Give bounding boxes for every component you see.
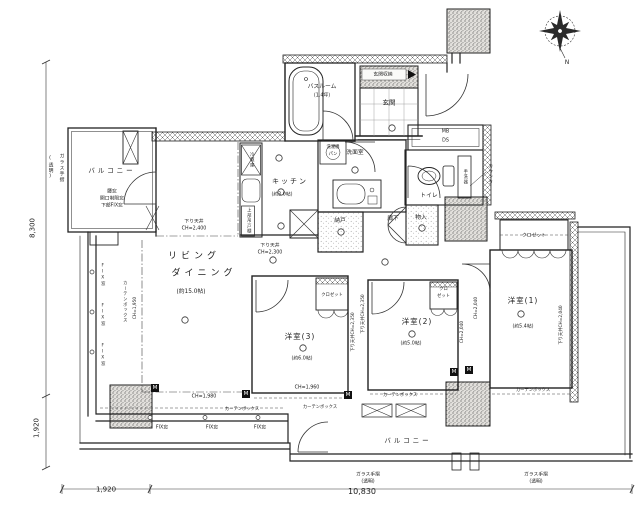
fridge-label: 冷蔵庫: [249, 152, 254, 168]
fix-window-v1: FIX窓: [100, 263, 105, 286]
glass-rail-b2-label: ガラス手摺: [524, 472, 548, 477]
floor-plan-stage: バルコニー 腰窓 開口制限窓 下部FIX窓 リビング ダイニング (約15.0帖…: [0, 0, 640, 512]
glass-rail-b1-note: (透明): [361, 479, 374, 484]
bathtub-icon: [289, 67, 323, 135]
ceiling-2300-line1: 下り天井: [260, 243, 279, 248]
compass-north-label: N: [565, 60, 569, 66]
washer-label-1: 洗濯機: [327, 146, 340, 151]
ceiling-2040-label: 下り天井CH=2,040: [560, 305, 565, 344]
kitchen-size: (約3.0帖): [272, 192, 293, 197]
living-size: (約15.0帖): [176, 289, 205, 295]
toilet-label: トイレ: [420, 193, 437, 199]
entrance-storage-label: 玄関収納: [373, 72, 392, 77]
balcony-left-label: バルコニー: [88, 168, 135, 175]
fix-window-v3: FIX窓: [100, 343, 105, 366]
bath-size: (1.4坪): [314, 93, 330, 98]
bedroom3-label: 洋室(3): [285, 333, 316, 341]
dim-left-lower: 1,920: [33, 418, 40, 438]
fix-window-b1: FIX窓: [156, 425, 168, 430]
curtain-box-vertical: カーテンボックス: [122, 281, 127, 323]
ch1980-label: CH=1,980: [192, 394, 217, 399]
curtain-box-bed1: カーテンボックス: [516, 389, 550, 394]
nando-label: 納戸: [334, 218, 346, 224]
ch2040-b: CH=2,040: [475, 297, 480, 319]
ceiling-2350-b: 下り天井CH=2,350: [362, 294, 367, 333]
ceiling-2350-a: 下り天井CH=2,350: [352, 312, 357, 351]
window-note-line1: 腰窓: [107, 189, 117, 194]
entrance-label: 玄関: [383, 100, 396, 107]
bedroom3-size: (約6.0帖): [292, 356, 313, 361]
walls: [68, 53, 632, 470]
compass-icon: [539, 10, 581, 58]
mb-label: MB: [442, 129, 449, 134]
meter-mark-5: M: [465, 366, 473, 374]
glass-rail-b2-note: (透明): [529, 479, 542, 484]
dimension-lines: [42, 60, 634, 494]
fix-window-v2: FIX窓: [100, 303, 105, 326]
glass-rail-left-note: (透明): [47, 156, 52, 180]
hand-basin-label: 手洗器: [462, 169, 467, 185]
living-label-2: ダイニング: [171, 269, 236, 278]
glass-rail-b1-label: ガラス手摺: [356, 472, 380, 477]
ch1950-label: CH=1,950: [134, 297, 139, 319]
counter-note-label: カウンター: [487, 164, 492, 191]
ceiling-2300-line2: CH=2,300: [258, 250, 283, 255]
dim-bottom-main: 10,830: [348, 488, 376, 496]
meter-mark-1: M: [151, 384, 159, 392]
floor-plan-drawing: [0, 0, 640, 512]
window-note-line3: 下部FIX窓: [101, 203, 123, 208]
balcony-bottom-label: バルコニー: [384, 438, 431, 445]
ceiling-2400-line1: 下り天井: [184, 219, 203, 224]
fix-window-b3: FIX窓: [254, 425, 266, 430]
exterior-wall-hatch: [152, 55, 578, 402]
window-note-line2: 開口制限窓: [100, 196, 124, 201]
washer-label-2: パン: [329, 152, 338, 157]
living-label-1: リビング: [168, 252, 220, 261]
meter-mark-3: M: [344, 391, 352, 399]
kitchen-label: キッチン: [272, 178, 308, 185]
fix-window-b2: FIX窓: [206, 425, 218, 430]
ds-label: DS: [442, 138, 449, 143]
dim-left-upper: 8,300: [29, 218, 36, 238]
ceiling-boundary-lines: [142, 142, 250, 392]
toilet-icon: [418, 166, 486, 186]
x-symbols: [123, 131, 426, 417]
meter-mark-4: M: [450, 368, 458, 376]
bedroom1-size: (約5.4帖): [513, 324, 534, 329]
meter-mark-2: M: [242, 390, 250, 398]
hallway-label: 廊下: [387, 216, 399, 222]
cabinet-label: 上部吊戸棚: [246, 208, 251, 235]
bath-label: バスルーム: [308, 84, 337, 90]
monoire-label: 物入: [415, 215, 427, 221]
closet1-label: クロゼット: [522, 233, 546, 238]
curtain-box-bed3: カーテンボックス: [303, 406, 337, 411]
closet2-label-2: ゼット: [437, 295, 450, 300]
ch1960-label: CH=1,960: [295, 385, 320, 390]
dim-bottom-left: 1,920: [96, 486, 116, 493]
glass-rail-left-label: ガラス手摺: [58, 154, 63, 183]
ceiling-2400-line2: CH=2,400: [182, 226, 207, 231]
ch2040-a: CH=2,040: [461, 321, 466, 343]
bedroom2-size: (約5.0帖): [401, 341, 422, 346]
washroom-label: 洗面室: [346, 150, 363, 156]
closet3-label: クロゼット: [321, 294, 342, 299]
bedroom1-label: 洋室(1): [508, 297, 539, 305]
curtain-box-living: カーテンボックス: [225, 408, 259, 413]
curtain-box-bed2: カーテンボックス: [383, 393, 417, 398]
bedroom2-label: 洋室(2): [402, 318, 433, 326]
closet2-label-1: クロ: [439, 288, 448, 293]
